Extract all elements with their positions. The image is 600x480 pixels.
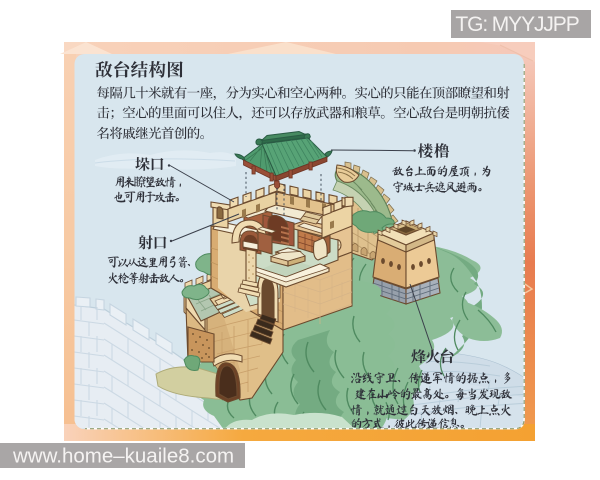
svg-text:TG: MYYJJPP: TG: MYYJJPP — [455, 13, 578, 36]
svg-text:www.home–kuaile8.com: www.home–kuaile8.com — [12, 445, 234, 468]
